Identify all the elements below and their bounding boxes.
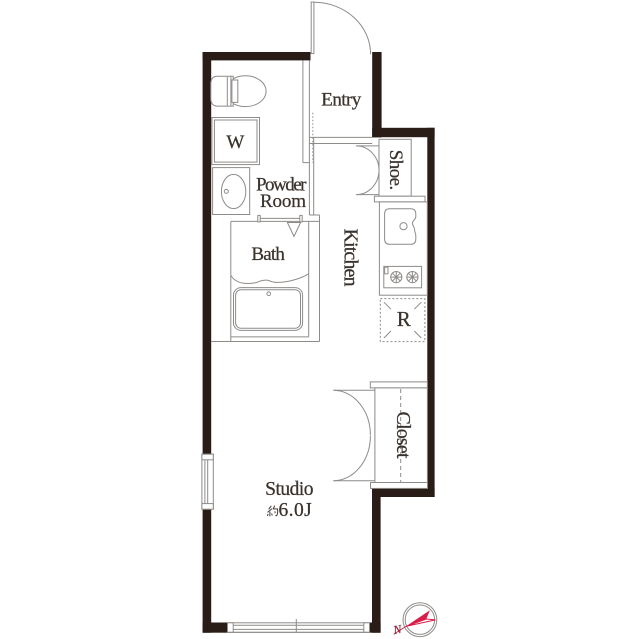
svg-text:Kitchen: Kitchen: [340, 229, 362, 287]
svg-text:Room: Room: [260, 191, 306, 212]
svg-text:W: W: [226, 132, 244, 153]
svg-text:R: R: [397, 307, 411, 331]
svg-text:Entry: Entry: [321, 90, 362, 111]
svg-text:6.0J: 6.0J: [278, 500, 312, 521]
svg-text:Studio: Studio: [265, 479, 313, 500]
svg-text:Shoe.: Shoe.: [385, 150, 406, 191]
svg-text:Closet: Closet: [392, 412, 414, 459]
svg-text:Bath: Bath: [251, 244, 285, 265]
